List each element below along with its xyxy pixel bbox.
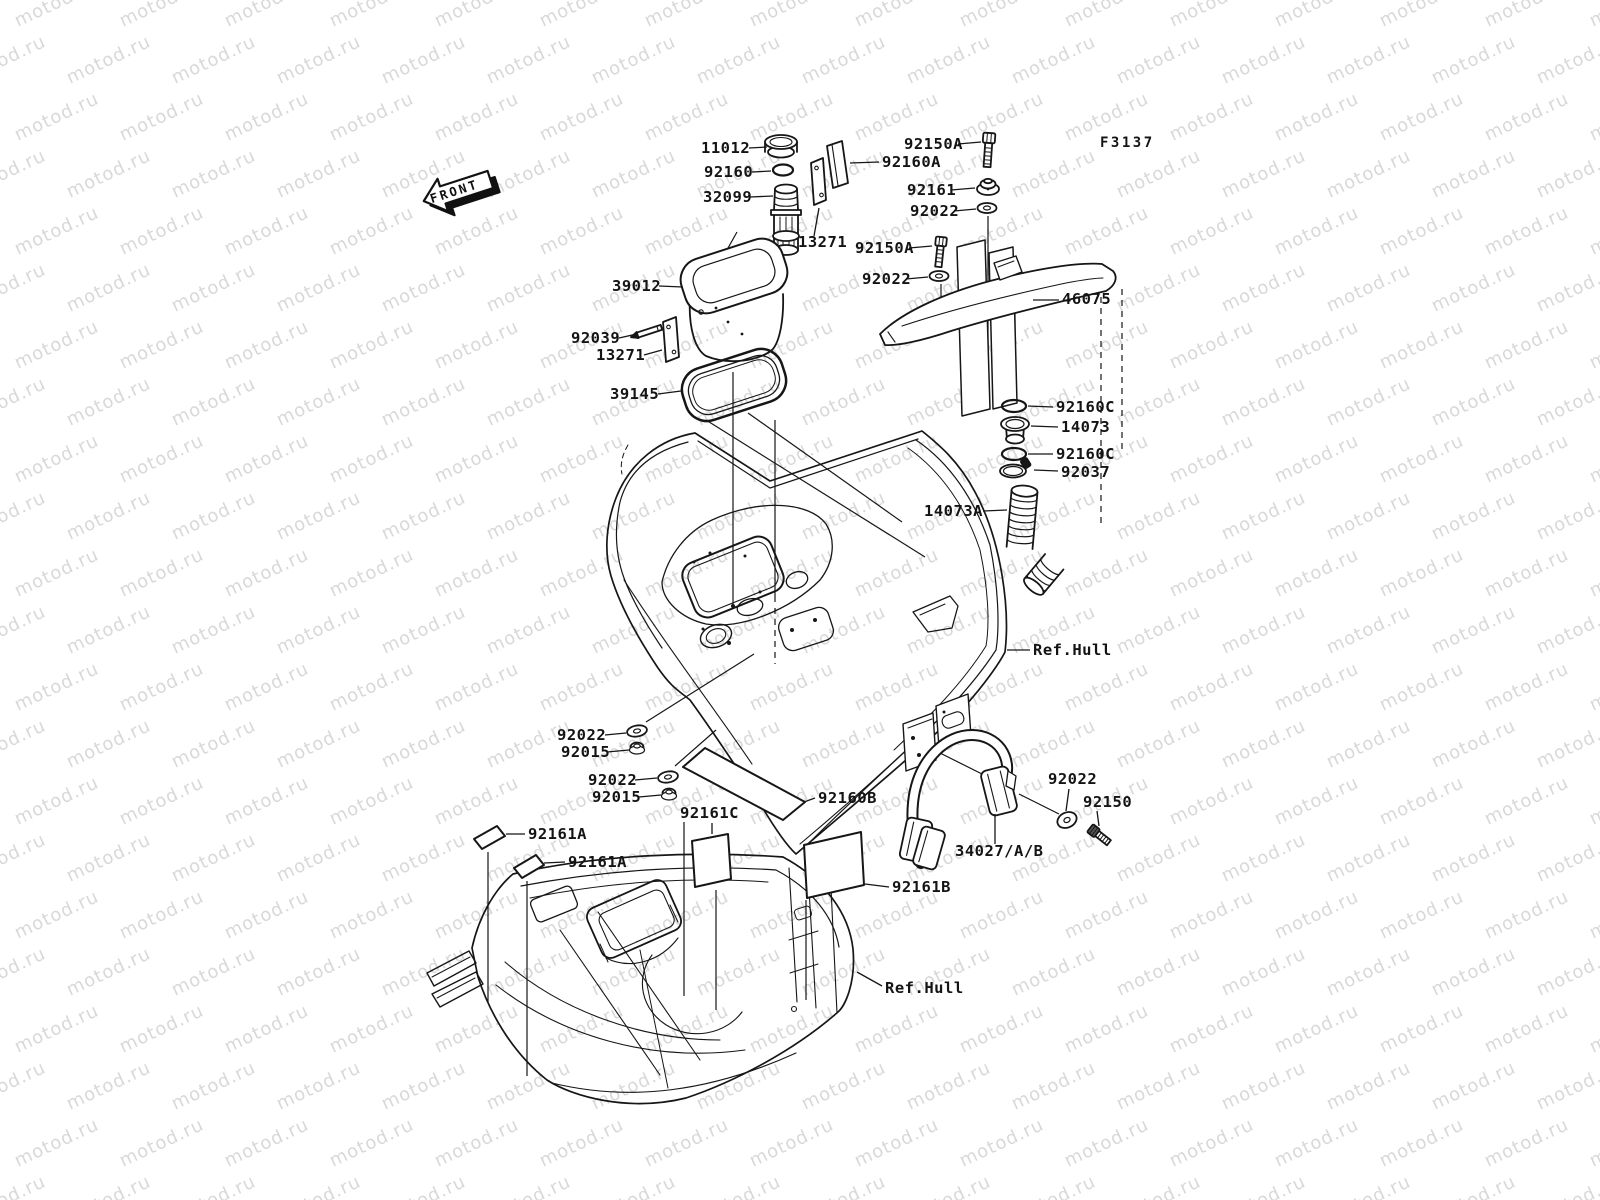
part-label-ref-hull-top: Ref.Hull [1033, 641, 1112, 659]
watermark-text: motod.ru [326, 202, 417, 259]
watermark-text: motod.ru [221, 886, 312, 943]
part-label-92161C: 92161C [680, 804, 739, 822]
watermark-text: motod.ru [378, 31, 469, 88]
watermark-text: motod.ru [1586, 202, 1600, 259]
watermark-text: motod.ru [1323, 601, 1414, 658]
watermark-text: motod.ru [641, 886, 732, 943]
watermark-text: motod.ru [116, 430, 207, 487]
watermark-text: motod.ru [431, 316, 522, 373]
watermark-text: motod.ru [1113, 943, 1204, 1000]
watermark-text: motod.ru [326, 658, 417, 715]
watermark-text: motod.ru [1218, 373, 1309, 430]
watermark-text: motod.ru [746, 316, 837, 373]
part-label-92022-4: 92022 [588, 771, 637, 789]
watermark-text: motod.ru [1271, 886, 1362, 943]
watermark-text: motod.ru [956, 88, 1047, 145]
part-label-ref-hull-bottom: Ref.Hull [885, 979, 964, 997]
watermark-text: motod.ru [693, 1057, 784, 1114]
part-label-32099: 32099 [703, 188, 752, 206]
watermark-text: motod.ru [1218, 259, 1309, 316]
watermark-text: motod.ru [956, 1000, 1047, 1057]
part-label-92150A-1: 92150A [904, 135, 963, 153]
watermark-text: motod.ru [1533, 31, 1600, 88]
watermark-text: motod.ru [221, 658, 312, 715]
bolt-icon-92150A-2 [933, 236, 947, 267]
watermark-text: motod.ru [63, 145, 154, 202]
leader-line-14073A [983, 510, 1007, 511]
watermark-text: motod.ru [221, 1114, 312, 1171]
watermark-text: motod.ru [1218, 715, 1309, 772]
watermark-text: motod.ru [63, 31, 154, 88]
watermark-text: motod.ru [1113, 1171, 1204, 1200]
nut-icon-92015-2 [662, 789, 677, 801]
watermark-text: motod.ru [1428, 31, 1519, 88]
watermark-text: motod.ru [11, 658, 102, 715]
watermark-text: motod.ru [1428, 601, 1519, 658]
part-label-92161A-1: 92161A [528, 825, 587, 843]
part-label-92160: 92160 [704, 163, 753, 181]
watermark-text: motod.ru [1533, 715, 1600, 772]
watermark-text: motod.ru [0, 1057, 49, 1114]
watermark-text: motod.ru [641, 1114, 732, 1171]
watermark-text: motod.ru [0, 601, 49, 658]
watermark-text: motod.ru [1008, 943, 1099, 1000]
watermark-text: motod.ru [326, 88, 417, 145]
part-label-92160B: 92160B [818, 789, 877, 807]
watermark-text: motod.ru [956, 1114, 1047, 1171]
watermark-text: motod.ru [326, 886, 417, 943]
watermark-text: motod.ru [168, 943, 259, 1000]
watermark-text: motod.ru [168, 373, 259, 430]
watermark-text: motod.ru [693, 943, 784, 1000]
leader-line-92161A-2 [544, 862, 565, 863]
watermark-text: motod.ru [168, 31, 259, 88]
leader-line-92022-4 [635, 778, 657, 780]
watermark-text: motod.ru [378, 1171, 469, 1200]
leader-line-39012 [659, 286, 683, 287]
watermark-text: motod.ru [273, 943, 364, 1000]
watermark-text: motod.ru [168, 487, 259, 544]
parts-diagram-canvas: motod.rumotod.rumotod.rumotod.rumotod.ru… [0, 0, 1600, 1200]
watermark-text: motod.ru [483, 31, 574, 88]
watermark-text: motod.ru [273, 601, 364, 658]
watermark-text: motod.ru [1481, 88, 1572, 145]
watermark-text: motod.ru [693, 487, 784, 544]
watermark-text: motod.ru [0, 487, 49, 544]
watermark-pattern: motod.rumotod.rumotod.rumotod.rumotod.ru… [0, 0, 1600, 1200]
watermark-text: motod.ru [116, 1000, 207, 1057]
watermark-text: motod.ru [431, 88, 522, 145]
watermark-text: motod.ru [641, 1000, 732, 1057]
watermark-text: motod.ru [956, 430, 1047, 487]
watermark-text: motod.ru [1428, 145, 1519, 202]
watermark-text: motod.ru [693, 601, 784, 658]
nut-icon-92015-1 [630, 743, 645, 755]
part-label-39145: 39145 [610, 385, 659, 403]
watermark-text: motod.ru [798, 31, 889, 88]
part-label-92161A-2: 92161A [568, 853, 627, 871]
watermark-text: motod.ru [11, 544, 102, 601]
watermark-text: motod.ru [168, 715, 259, 772]
watermark-text: motod.ru [378, 259, 469, 316]
watermark-text: motod.ru [1533, 829, 1600, 886]
watermark-text: motod.ru [1323, 373, 1414, 430]
watermark-text: motod.ru [168, 145, 259, 202]
watermark-text: motod.ru [536, 88, 627, 145]
pin-icon-92039 [630, 324, 662, 340]
watermark-text: motod.ru [431, 544, 522, 601]
watermark-text: motod.ru [431, 886, 522, 943]
watermark-text: motod.ru [483, 373, 574, 430]
watermark-text: motod.ru [1428, 259, 1519, 316]
watermark-text: motod.ru [536, 658, 627, 715]
watermark-text: motod.ru [116, 886, 207, 943]
watermark-text: motod.ru [851, 544, 942, 601]
watermark-text: motod.ru [483, 601, 574, 658]
watermark-text: motod.ru [1323, 259, 1414, 316]
watermark-text: motod.ru [378, 601, 469, 658]
watermark-text: motod.ru [1376, 886, 1467, 943]
watermark-text: motod.ru [378, 487, 469, 544]
watermark-text: motod.ru [1113, 829, 1204, 886]
watermark-text: motod.ru [1323, 31, 1414, 88]
watermark-text: motod.ru [1218, 829, 1309, 886]
watermark-text: motod.ru [746, 0, 837, 32]
watermark-text: motod.ru [851, 1000, 942, 1057]
watermark-text: motod.ru [588, 1171, 679, 1200]
watermark-text: motod.ru [1376, 1000, 1467, 1057]
fuel-cap-icon [765, 135, 797, 158]
watermark-text: motod.ru [1008, 31, 1099, 88]
watermark-text: motod.ru [1218, 1171, 1309, 1200]
watermark-text: motod.ru [326, 316, 417, 373]
watermark-text: motod.ru [378, 943, 469, 1000]
watermark-text: motod.ru [1218, 487, 1309, 544]
watermark-text: motod.ru [63, 829, 154, 886]
watermark-text: motod.ru [903, 31, 994, 88]
watermark-text: motod.ru [116, 658, 207, 715]
watermark-text: motod.ru [1113, 373, 1204, 430]
watermark-text: motod.ru [1323, 943, 1414, 1000]
watermark-text: motod.ru [168, 601, 259, 658]
watermark-text: motod.ru [588, 487, 679, 544]
part-label-92022-3: 92022 [557, 726, 606, 744]
watermark-text: motod.ru [798, 1057, 889, 1114]
part-label-92022-5: 92022 [1048, 770, 1097, 788]
watermark-text: motod.ru [273, 31, 364, 88]
watermark-text: motod.ru [1481, 0, 1572, 32]
watermark-text: motod.ru [0, 259, 49, 316]
watermark-text: motod.ru [1376, 88, 1467, 145]
watermark-text: motod.ru [273, 1171, 364, 1200]
watermark-text: motod.ru [1533, 487, 1600, 544]
watermark-text: motod.ru [798, 1171, 889, 1200]
watermark-text: motod.ru [1428, 943, 1519, 1000]
watermark-text: motod.ru [1481, 886, 1572, 943]
watermark-text: motod.ru [1323, 1171, 1414, 1200]
watermark-text: motod.ru [221, 0, 312, 32]
watermark-text: motod.ru [1533, 943, 1600, 1000]
watermark-text: motod.ru [116, 772, 207, 829]
watermark-text: motod.ru [1218, 601, 1309, 658]
watermark-text: motod.ru [536, 0, 627, 32]
watermark-text: motod.ru [378, 829, 469, 886]
watermark-text: motod.ru [641, 316, 732, 373]
watermark-text: motod.ru [221, 430, 312, 487]
bracket-plate-icon-left [663, 317, 679, 362]
watermark-text: motod.ru [1533, 1057, 1600, 1114]
watermark-text: motod.ru [536, 202, 627, 259]
watermark-text: motod.ru [641, 88, 732, 145]
watermark-text: motod.ru [431, 658, 522, 715]
watermark-text: motod.ru [1008, 1057, 1099, 1114]
watermark-text: motod.ru [0, 373, 49, 430]
watermark-text: motod.ru [221, 772, 312, 829]
watermark-text: motod.ru [1428, 829, 1519, 886]
watermark-text: motod.ru [1008, 715, 1099, 772]
watermark-text: motod.ru [1271, 202, 1362, 259]
watermark-text: motod.ru [1166, 202, 1257, 259]
watermark-text: motod.ru [11, 0, 102, 32]
watermark-text: motod.ru [11, 202, 102, 259]
watermark-text: motod.ru [326, 544, 417, 601]
watermark-text: motod.ru [1113, 715, 1204, 772]
watermark-text: motod.ru [1218, 943, 1309, 1000]
watermark-text: motod.ru [1271, 1000, 1362, 1057]
watermark-text: motod.ru [431, 430, 522, 487]
watermark-text: motod.ru [851, 0, 942, 32]
part-label-34027AB: 34027/A/B [955, 842, 1044, 860]
watermark-text: motod.ru [798, 943, 889, 1000]
watermark-text: motod.ru [746, 1114, 837, 1171]
watermark-text: motod.ru [11, 1000, 102, 1057]
watermark-text: motod.ru [63, 715, 154, 772]
part-label-13271-l: 13271 [596, 346, 645, 364]
watermark-text: motod.ru [221, 1000, 312, 1057]
watermark-text: motod.ru [273, 829, 364, 886]
watermark-text: motod.ru [11, 316, 102, 373]
watermark-text: motod.ru [1166, 316, 1257, 373]
watermark-text: motod.ru [903, 1057, 994, 1114]
part-label-11012: 11012 [701, 139, 750, 157]
watermark-text: motod.ru [588, 31, 679, 88]
watermark-text: motod.ru [1376, 1114, 1467, 1171]
watermark-text: motod.ru [63, 943, 154, 1000]
watermark-text: motod.ru [1586, 772, 1600, 829]
watermark-text: motod.ru [1166, 658, 1257, 715]
watermark-text: motod.ru [273, 1057, 364, 1114]
watermark-text: motod.ru [1586, 316, 1600, 373]
part-label-92022-1: 92022 [910, 202, 959, 220]
watermark-text: motod.ru [1376, 202, 1467, 259]
watermark-text: motod.ru [1586, 886, 1600, 943]
watermark-text: motod.ru [326, 0, 417, 32]
watermark-text: motod.ru [1586, 430, 1600, 487]
watermark-text: motod.ru [1061, 1000, 1152, 1057]
watermark-text: motod.ru [1218, 31, 1309, 88]
watermark-text: motod.ru [0, 31, 49, 88]
watermark-text: motod.ru [273, 259, 364, 316]
watermark-text: motod.ru [326, 430, 417, 487]
watermark-text: motod.ru [1481, 316, 1572, 373]
watermark-text: motod.ru [1061, 1114, 1152, 1171]
watermark-text: motod.ru [641, 430, 732, 487]
watermark-text: motod.ru [1166, 0, 1257, 32]
watermark-text: motod.ru [1323, 1057, 1414, 1114]
watermark-text: motod.ru [1533, 259, 1600, 316]
watermark-text: motod.ru [431, 1114, 522, 1171]
watermark-text: motod.ru [536, 1114, 627, 1171]
part-label-92160C-1: 92160C [1056, 398, 1115, 416]
watermark-text: motod.ru [1113, 145, 1204, 202]
watermark-text: motod.ru [378, 373, 469, 430]
part-label-92015-2: 92015 [592, 788, 641, 806]
part-label-14073: 14073 [1061, 418, 1110, 436]
watermark-text: motod.ru [116, 0, 207, 32]
watermark-text: motod.ru [641, 658, 732, 715]
watermark-text: motod.ru [63, 601, 154, 658]
watermark-text: motod.ru [1218, 1057, 1309, 1114]
watermark-text: motod.ru [116, 544, 207, 601]
watermark-text: motod.ru [431, 0, 522, 32]
watermark-text: motod.ru [378, 1057, 469, 1114]
watermark-text: motod.ru [956, 658, 1047, 715]
watermark-text: motod.ru [11, 1114, 102, 1171]
watermark-text: motod.ru [1008, 1171, 1099, 1200]
watermark-text: motod.ru [1271, 544, 1362, 601]
watermark-text: motod.ru [1481, 772, 1572, 829]
watermark-text: motod.ru [483, 1057, 574, 1114]
watermark-text: motod.ru [903, 1171, 994, 1200]
watermark-text: motod.ru [168, 259, 259, 316]
watermark-text: motod.ru [1113, 259, 1204, 316]
watermark-text: motod.ru [1481, 658, 1572, 715]
watermark-text: motod.ru [1533, 145, 1600, 202]
watermark-text: motod.ru [588, 1057, 679, 1114]
watermark-text: motod.ru [746, 430, 837, 487]
watermark-text: motod.ru [378, 715, 469, 772]
part-label-92039: 92039 [571, 329, 620, 347]
watermark-text: motod.ru [1533, 373, 1600, 430]
watermark-text: motod.ru [1533, 1171, 1600, 1200]
leader-line-14073 [1031, 426, 1058, 427]
watermark-text: motod.ru [1271, 1114, 1362, 1171]
watermark-text: motod.ru [1376, 772, 1467, 829]
watermark-text: motod.ru [168, 829, 259, 886]
watermark-text: motod.ru [0, 943, 49, 1000]
watermark-text: motod.ru [1533, 601, 1600, 658]
watermark-text: motod.ru [326, 1114, 417, 1171]
watermark-text: motod.ru [116, 88, 207, 145]
watermark-text: motod.ru [1166, 886, 1257, 943]
part-label-46075: 46075 [1062, 290, 1111, 308]
watermark-text: motod.ru [1586, 1114, 1600, 1171]
bracket-plate-icon-right [811, 158, 826, 205]
part-label-92037: 92037 [1061, 463, 1110, 481]
part-label-92161B: 92161B [892, 878, 951, 896]
watermark-text: motod.ru [326, 772, 417, 829]
watermark-text: motod.ru [1271, 658, 1362, 715]
watermark-text: motod.ru [1271, 316, 1362, 373]
watermark-text: motod.ru [1113, 487, 1204, 544]
part-label-92150: 92150 [1083, 793, 1132, 811]
watermark-text: motod.ru [1166, 88, 1257, 145]
watermark-text: motod.ru [1218, 145, 1309, 202]
pad-icon-92161B [804, 832, 864, 898]
watermark-text: motod.ru [1061, 202, 1152, 259]
watermark-text: motod.ru [11, 886, 102, 943]
part-label-13271-r: 13271 [798, 233, 847, 251]
watermark-text: motod.ru [1166, 544, 1257, 601]
leader-line-92015-2 [639, 795, 661, 797]
watermark-text: motod.ru [1586, 1000, 1600, 1057]
watermark-text: motod.ru [0, 715, 49, 772]
watermark-text: motod.ru [956, 886, 1047, 943]
watermark-text: motod.ru [221, 544, 312, 601]
watermark-text: motod.ru [483, 943, 574, 1000]
watermark-text: motod.ru [1271, 430, 1362, 487]
watermark-text: motod.ru [0, 145, 49, 202]
parts-diagram-page: motod.rumotod.rumotod.rumotod.rumotod.ru… [0, 0, 1600, 1200]
watermark-text: motod.ru [1586, 658, 1600, 715]
watermark-text: motod.ru [1271, 772, 1362, 829]
drain-bushing-icon-14073 [1001, 417, 1029, 444]
watermark-text: motod.ru [746, 658, 837, 715]
watermark-text: motod.ru [1323, 487, 1414, 544]
watermark-text: motod.ru [536, 544, 627, 601]
watermark-text: motod.ru [1113, 601, 1204, 658]
pad-icon-92161C [692, 834, 731, 887]
watermark-text: motod.ru [1113, 31, 1204, 88]
watermark-text: motod.ru [1323, 145, 1414, 202]
watermark-text: motod.ru [1271, 88, 1362, 145]
watermark-text: motod.ru [221, 88, 312, 145]
watermark-text: motod.ru [1061, 0, 1152, 32]
watermark-text: motod.ru [798, 373, 889, 430]
watermark-text: motod.ru [1481, 544, 1572, 601]
watermark-text: motod.ru [63, 1057, 154, 1114]
watermark-text: motod.ru [693, 31, 784, 88]
watermark-text: motod.ru [116, 202, 207, 259]
leader-line-92037 [1034, 470, 1058, 471]
watermark-text: motod.ru [0, 1171, 49, 1200]
watermark-text: motod.ru [326, 1000, 417, 1057]
watermark-text: motod.ru [483, 487, 574, 544]
watermark-text: motod.ru [11, 88, 102, 145]
watermark-text: motod.ru [1428, 373, 1519, 430]
o-ring-icon-92160 [773, 165, 793, 176]
watermark-text: motod.ru [1376, 430, 1467, 487]
watermark-text: motod.ru [1061, 544, 1152, 601]
watermark-text: motod.ru [431, 772, 522, 829]
watermark-text: motod.ru [536, 430, 627, 487]
watermark-text: motod.ru [1428, 487, 1519, 544]
pad-icon-92161A-1 [474, 826, 505, 849]
grommet-icon-92161 [977, 179, 999, 195]
watermark-text: motod.ru [1481, 202, 1572, 259]
washer-icon-92022-1 [978, 203, 997, 213]
watermark-text: motod.ru [168, 1057, 259, 1114]
watermark-text: motod.ru [1061, 886, 1152, 943]
part-label-92161: 92161 [907, 181, 956, 199]
part-label-39012: 39012 [612, 277, 661, 295]
watermark-text: motod.ru [63, 1171, 154, 1200]
watermark-text: motod.ru [0, 829, 49, 886]
watermark-text: motod.ru [168, 1171, 259, 1200]
watermark-text: motod.ru [956, 0, 1047, 32]
watermark-text: motod.ru [1428, 1057, 1519, 1114]
watermark-text: motod.ru [63, 259, 154, 316]
